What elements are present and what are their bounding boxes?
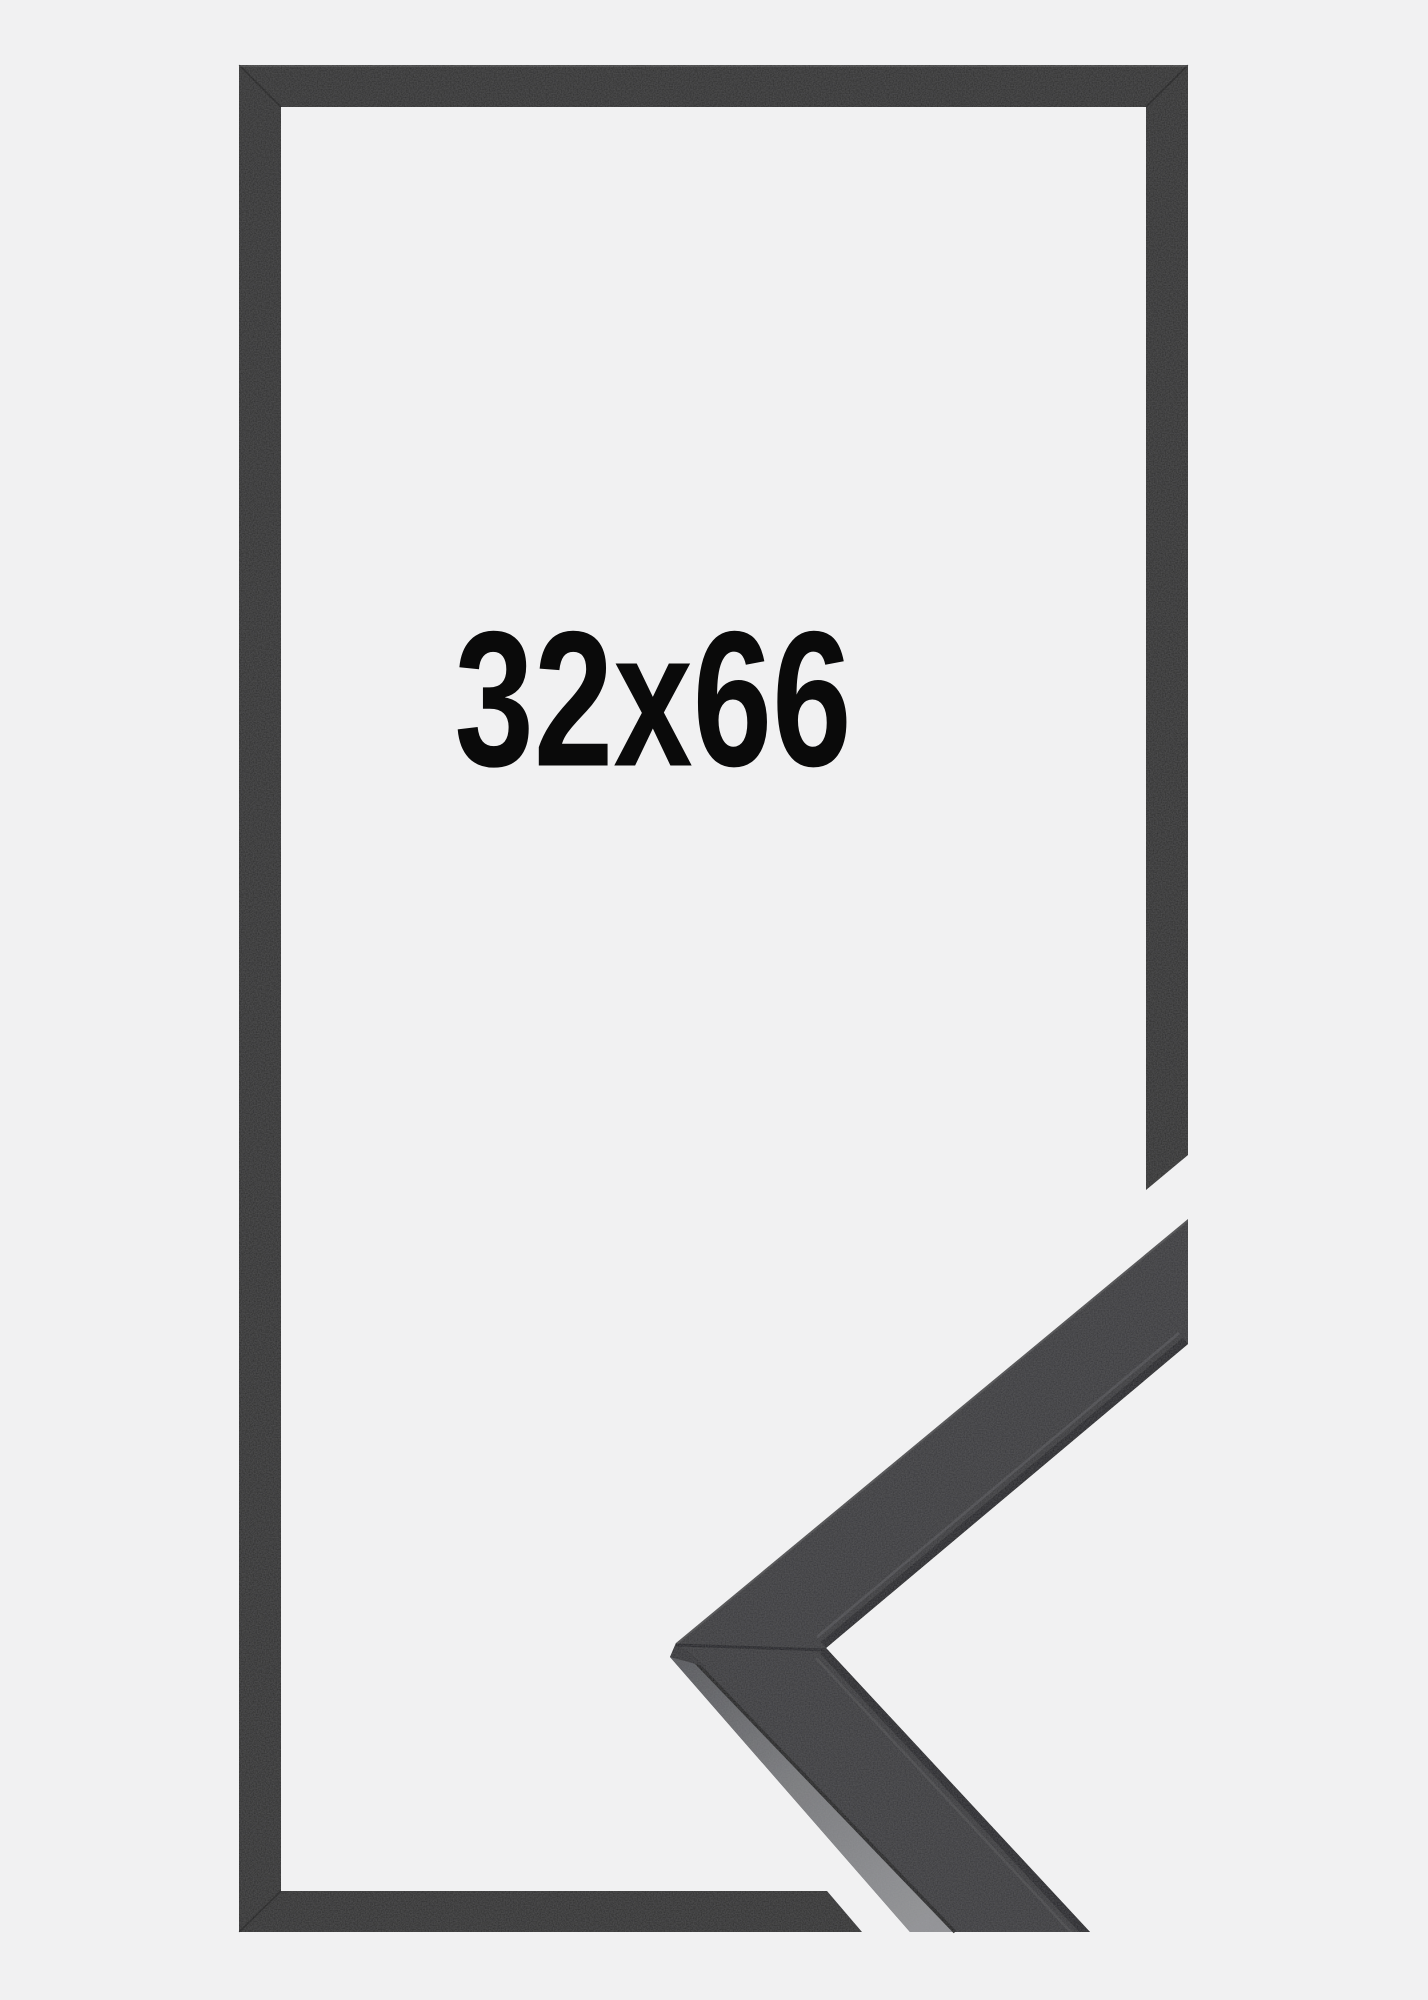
corner-sample-face (670, 1219, 1188, 1932)
product-image: 32x66 (0, 0, 1428, 2000)
frame-graphic (0, 0, 1428, 2000)
upper-arm-outer-highlight (676, 1219, 1188, 1643)
size-label: 32x66 (454, 603, 851, 796)
corner-sample (670, 1219, 1188, 1942)
